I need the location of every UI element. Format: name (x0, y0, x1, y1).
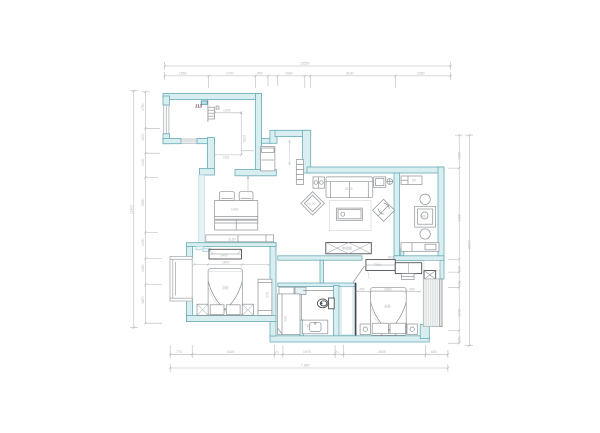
svg-text:1870: 1870 (141, 296, 145, 304)
svg-text:次卧: 次卧 (222, 285, 229, 290)
svg-text:1¼: 1¼ (274, 350, 279, 354)
svg-text:2400: 2400 (220, 254, 228, 258)
svg-text:1950: 1950 (417, 72, 425, 76)
svg-text:1700: 1700 (226, 72, 234, 76)
svg-text:1600: 1600 (457, 152, 461, 160)
svg-text:800: 800 (388, 256, 394, 260)
svg-text:450: 450 (409, 288, 415, 292)
svg-text:1¼: 1¼ (334, 350, 339, 354)
svg-text:TAM: TAM (374, 263, 381, 267)
svg-text:450: 450 (257, 72, 263, 76)
svg-text:600: 600 (457, 266, 461, 272)
svg-text:2750: 2750 (242, 135, 246, 143)
svg-text:776: 776 (176, 350, 182, 354)
svg-text:±0.00: ±0.00 (307, 202, 316, 206)
svg-text:2100: 2100 (457, 309, 461, 317)
svg-text:600: 600 (265, 292, 269, 298)
svg-text:4400: 4400 (457, 214, 461, 222)
svg-text:1250: 1250 (141, 238, 145, 246)
svg-text:650: 650 (431, 350, 437, 354)
svg-text:3400: 3400 (227, 350, 235, 354)
svg-text:3100: 3100 (346, 72, 354, 76)
svg-text:11400: 11400 (130, 205, 134, 214)
svg-text:1200: 1200 (141, 133, 145, 141)
svg-text:2(0): 2(0) (223, 156, 229, 160)
svg-text:1750: 1750 (141, 103, 145, 111)
svg-text:620: 620 (457, 337, 461, 343)
svg-text:1975: 1975 (303, 350, 311, 354)
svg-text:1000: 1000 (285, 72, 293, 76)
svg-text:15250: 15250 (300, 62, 310, 66)
svg-text:1800: 1800 (384, 288, 392, 292)
svg-text:3150: 3150 (345, 187, 353, 191)
svg-text:750: 750 (457, 280, 461, 286)
svg-text:电视柜: 电视柜 (342, 246, 353, 251)
svg-text:10150: 10150 (467, 240, 471, 250)
svg-text:1800: 1800 (222, 261, 230, 265)
svg-text:750: 750 (305, 324, 311, 328)
svg-text:2650: 2650 (141, 198, 145, 206)
svg-text:1500: 1500 (223, 109, 231, 113)
svg-text:7,800: 7,800 (301, 364, 310, 368)
svg-text:主卧: 主卧 (384, 304, 391, 309)
svg-text:1150: 1150 (141, 159, 145, 166)
svg-text:900: 900 (420, 215, 426, 219)
svg-text:1400: 1400 (231, 208, 239, 212)
svg-text:60: 60 (412, 179, 416, 183)
svg-text:3150: 3150 (228, 237, 236, 241)
svg-text:1250: 1250 (141, 264, 145, 272)
svg-text:1550: 1550 (179, 72, 187, 76)
svg-text:900: 900 (283, 316, 287, 322)
svg-text:2635: 2635 (378, 350, 386, 354)
svg-text:J13: J13 (195, 104, 203, 109)
svg-text:450: 450 (359, 288, 365, 292)
